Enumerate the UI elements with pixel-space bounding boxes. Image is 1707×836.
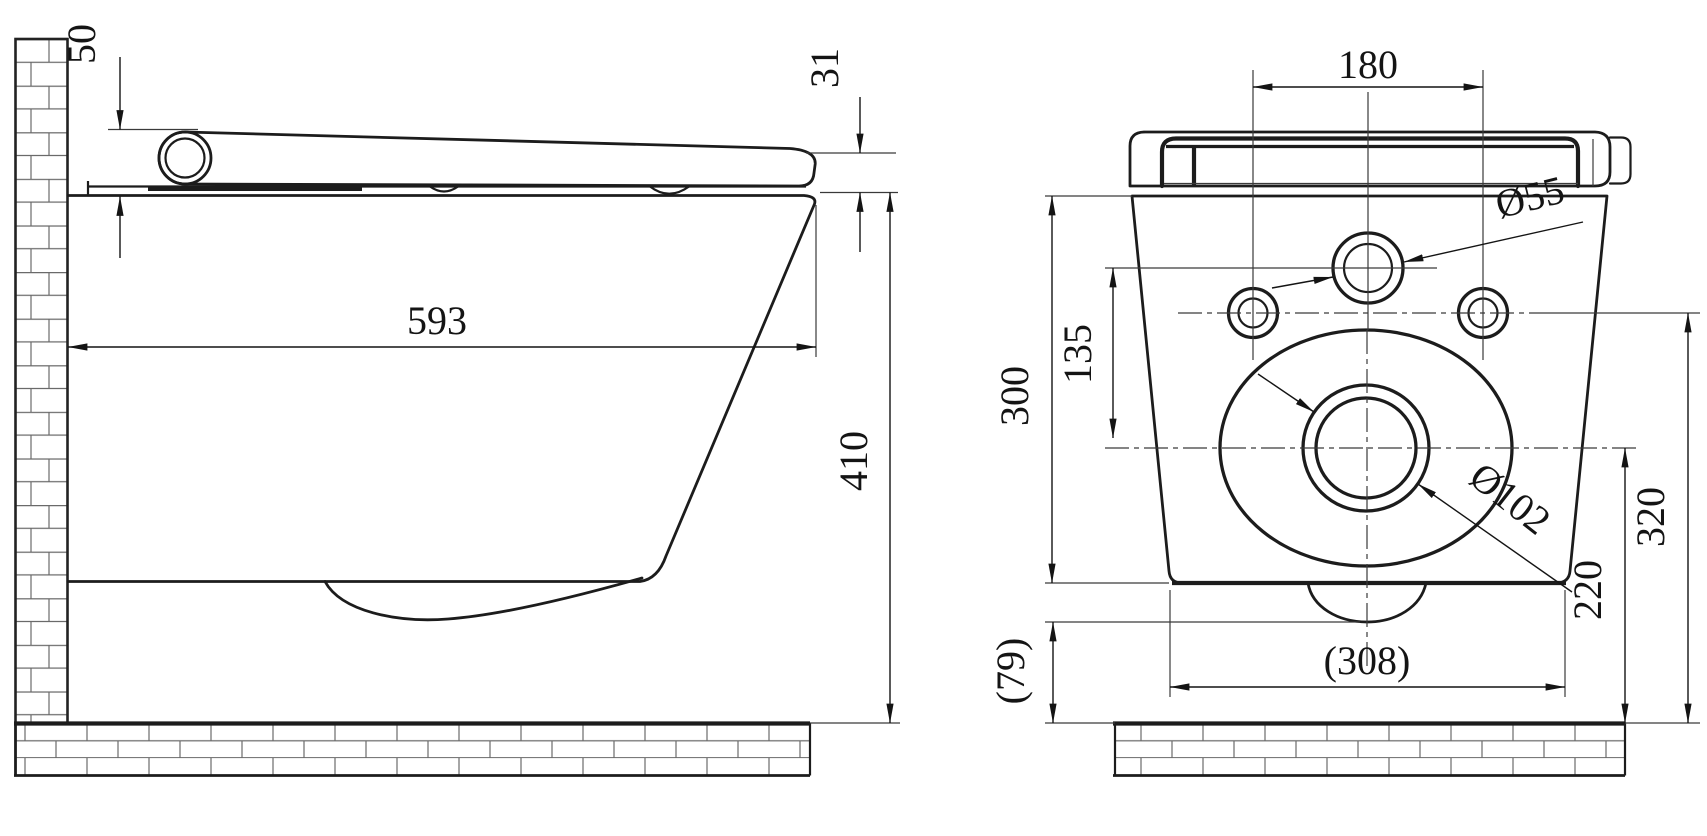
dim-label-31: 31 (802, 48, 847, 88)
dim-label-180: 180 (1338, 42, 1398, 87)
dim-holes-center-height: 320 (1628, 313, 1688, 723)
dim-label-79: (79) (988, 638, 1033, 705)
center-lines (1045, 70, 1700, 723)
toilet-installation-drawing: 50 31 593 410 (0, 0, 1707, 836)
dim-label-50: 50 (59, 24, 104, 64)
rear-view: 180 Ø55 135 300 (79) (308) (988, 42, 1700, 776)
side-view: 50 31 593 410 (14, 24, 900, 776)
dim-label-320: 320 (1628, 487, 1673, 547)
hinge-circle-inner (166, 139, 205, 178)
dim-drain-center-height: 220 (1565, 448, 1625, 723)
dim-label-d55: Ø55 (1491, 167, 1569, 227)
dim-height: 410 (810, 193, 900, 724)
floor-section (1113, 724, 1625, 776)
toilet-body-profile (68, 181, 815, 620)
wall-section (16, 39, 68, 723)
seat-lid-profile (159, 132, 815, 186)
dim-label-135: 135 (1055, 324, 1100, 384)
dim-label-410: 410 (831, 431, 876, 491)
drain-trap-bulge (325, 578, 642, 620)
dim-drain-floor-clearance: (79) (988, 622, 1053, 723)
lid-side-cap (1610, 138, 1631, 184)
holes-and-drain (1220, 233, 1512, 566)
technical-drawing-page: 50 31 593 410 (0, 0, 1707, 836)
toilet-body-rear (1132, 196, 1607, 622)
dim-depth: 593 (68, 205, 816, 357)
dim-supply-to-drain: 135 (1055, 268, 1113, 438)
hinge-circle-outer (159, 132, 211, 184)
dim-label-220: 220 (1565, 560, 1610, 620)
floor-section (14, 724, 810, 776)
dim-base-width: (308) (1170, 638, 1565, 687)
dim-label-593: 593 (407, 298, 467, 343)
dim-label-300: 300 (992, 366, 1037, 426)
dim-body-height: 300 (992, 196, 1052, 583)
dim-label-308: (308) (1324, 638, 1411, 683)
dim-hole-spacing: 180 (1253, 42, 1483, 87)
